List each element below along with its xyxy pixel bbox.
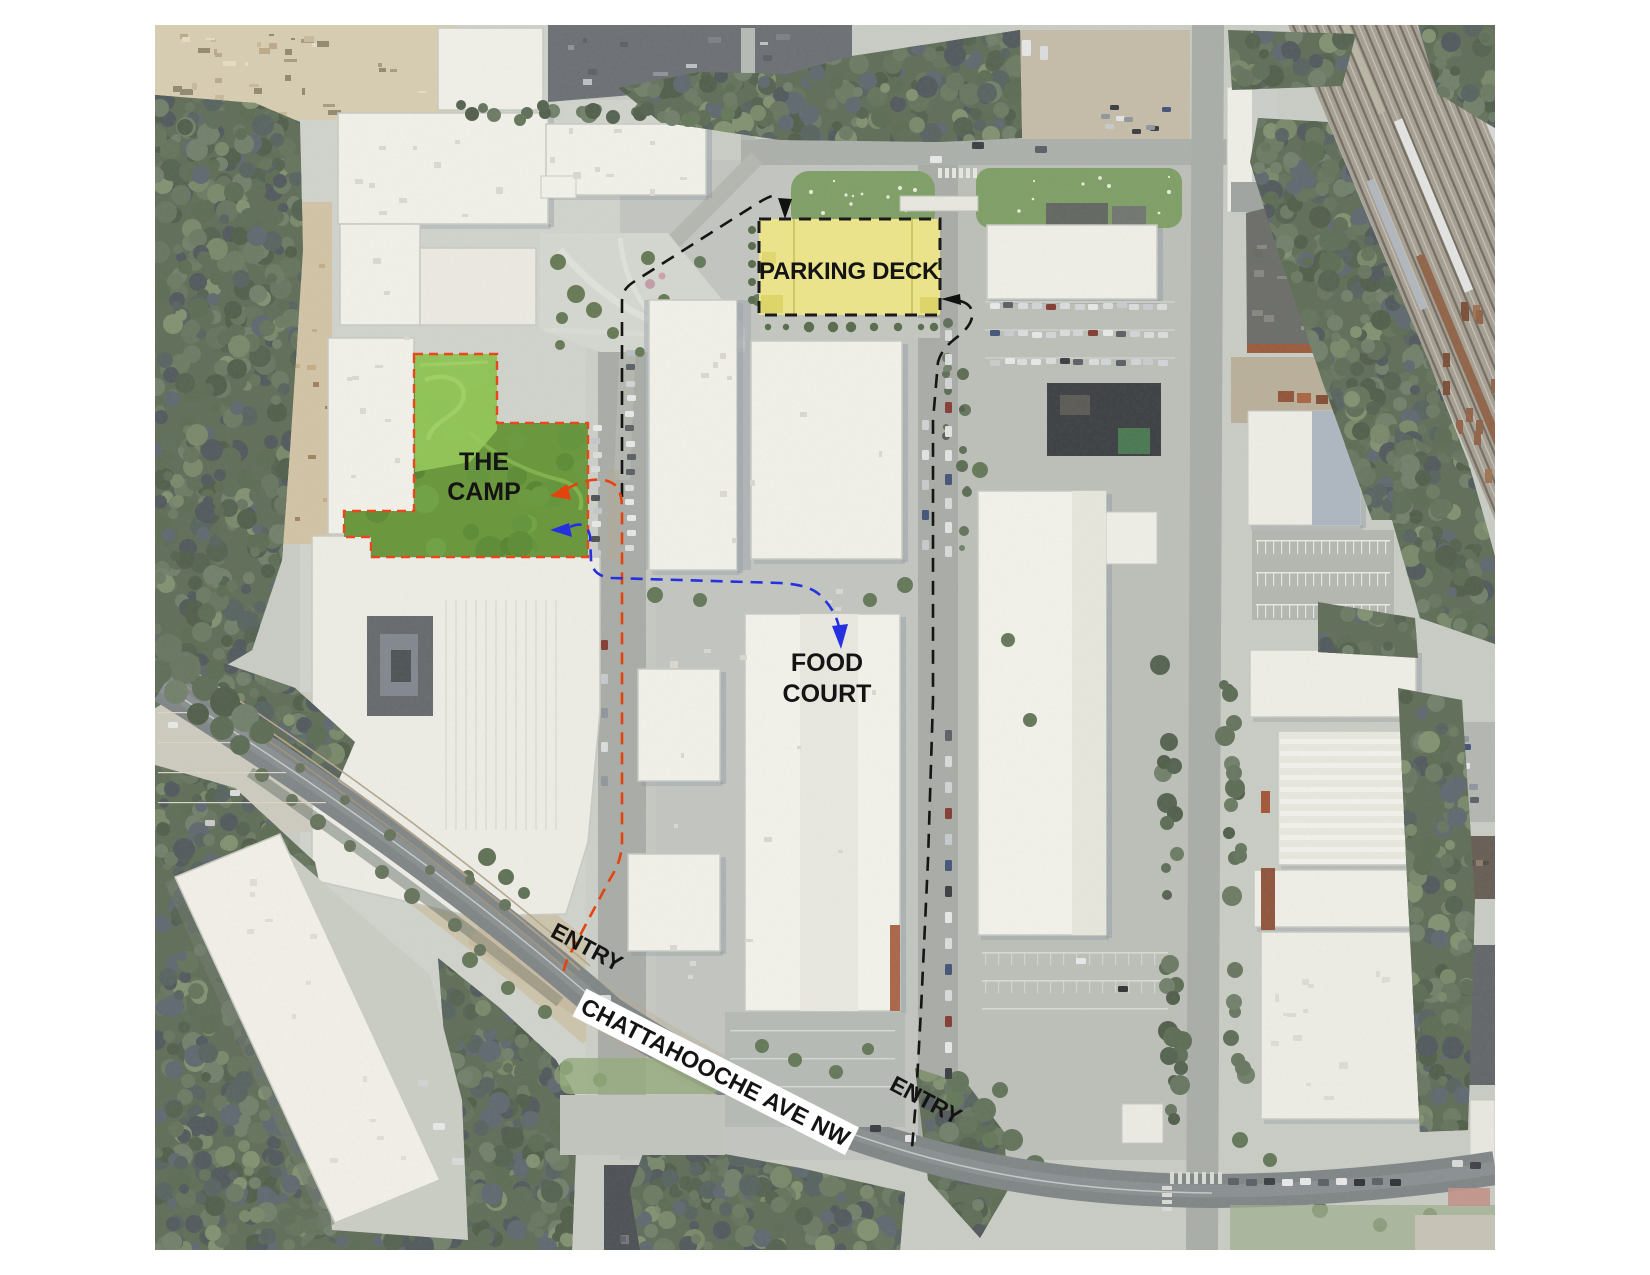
svg-text:FOOD: FOOD bbox=[791, 649, 863, 677]
svg-text:PARKING DECK: PARKING DECK bbox=[759, 258, 940, 285]
svg-text:CAMP: CAMP bbox=[447, 478, 521, 506]
svg-text:COURT: COURT bbox=[783, 680, 872, 708]
svg-text:THE: THE bbox=[459, 448, 509, 476]
